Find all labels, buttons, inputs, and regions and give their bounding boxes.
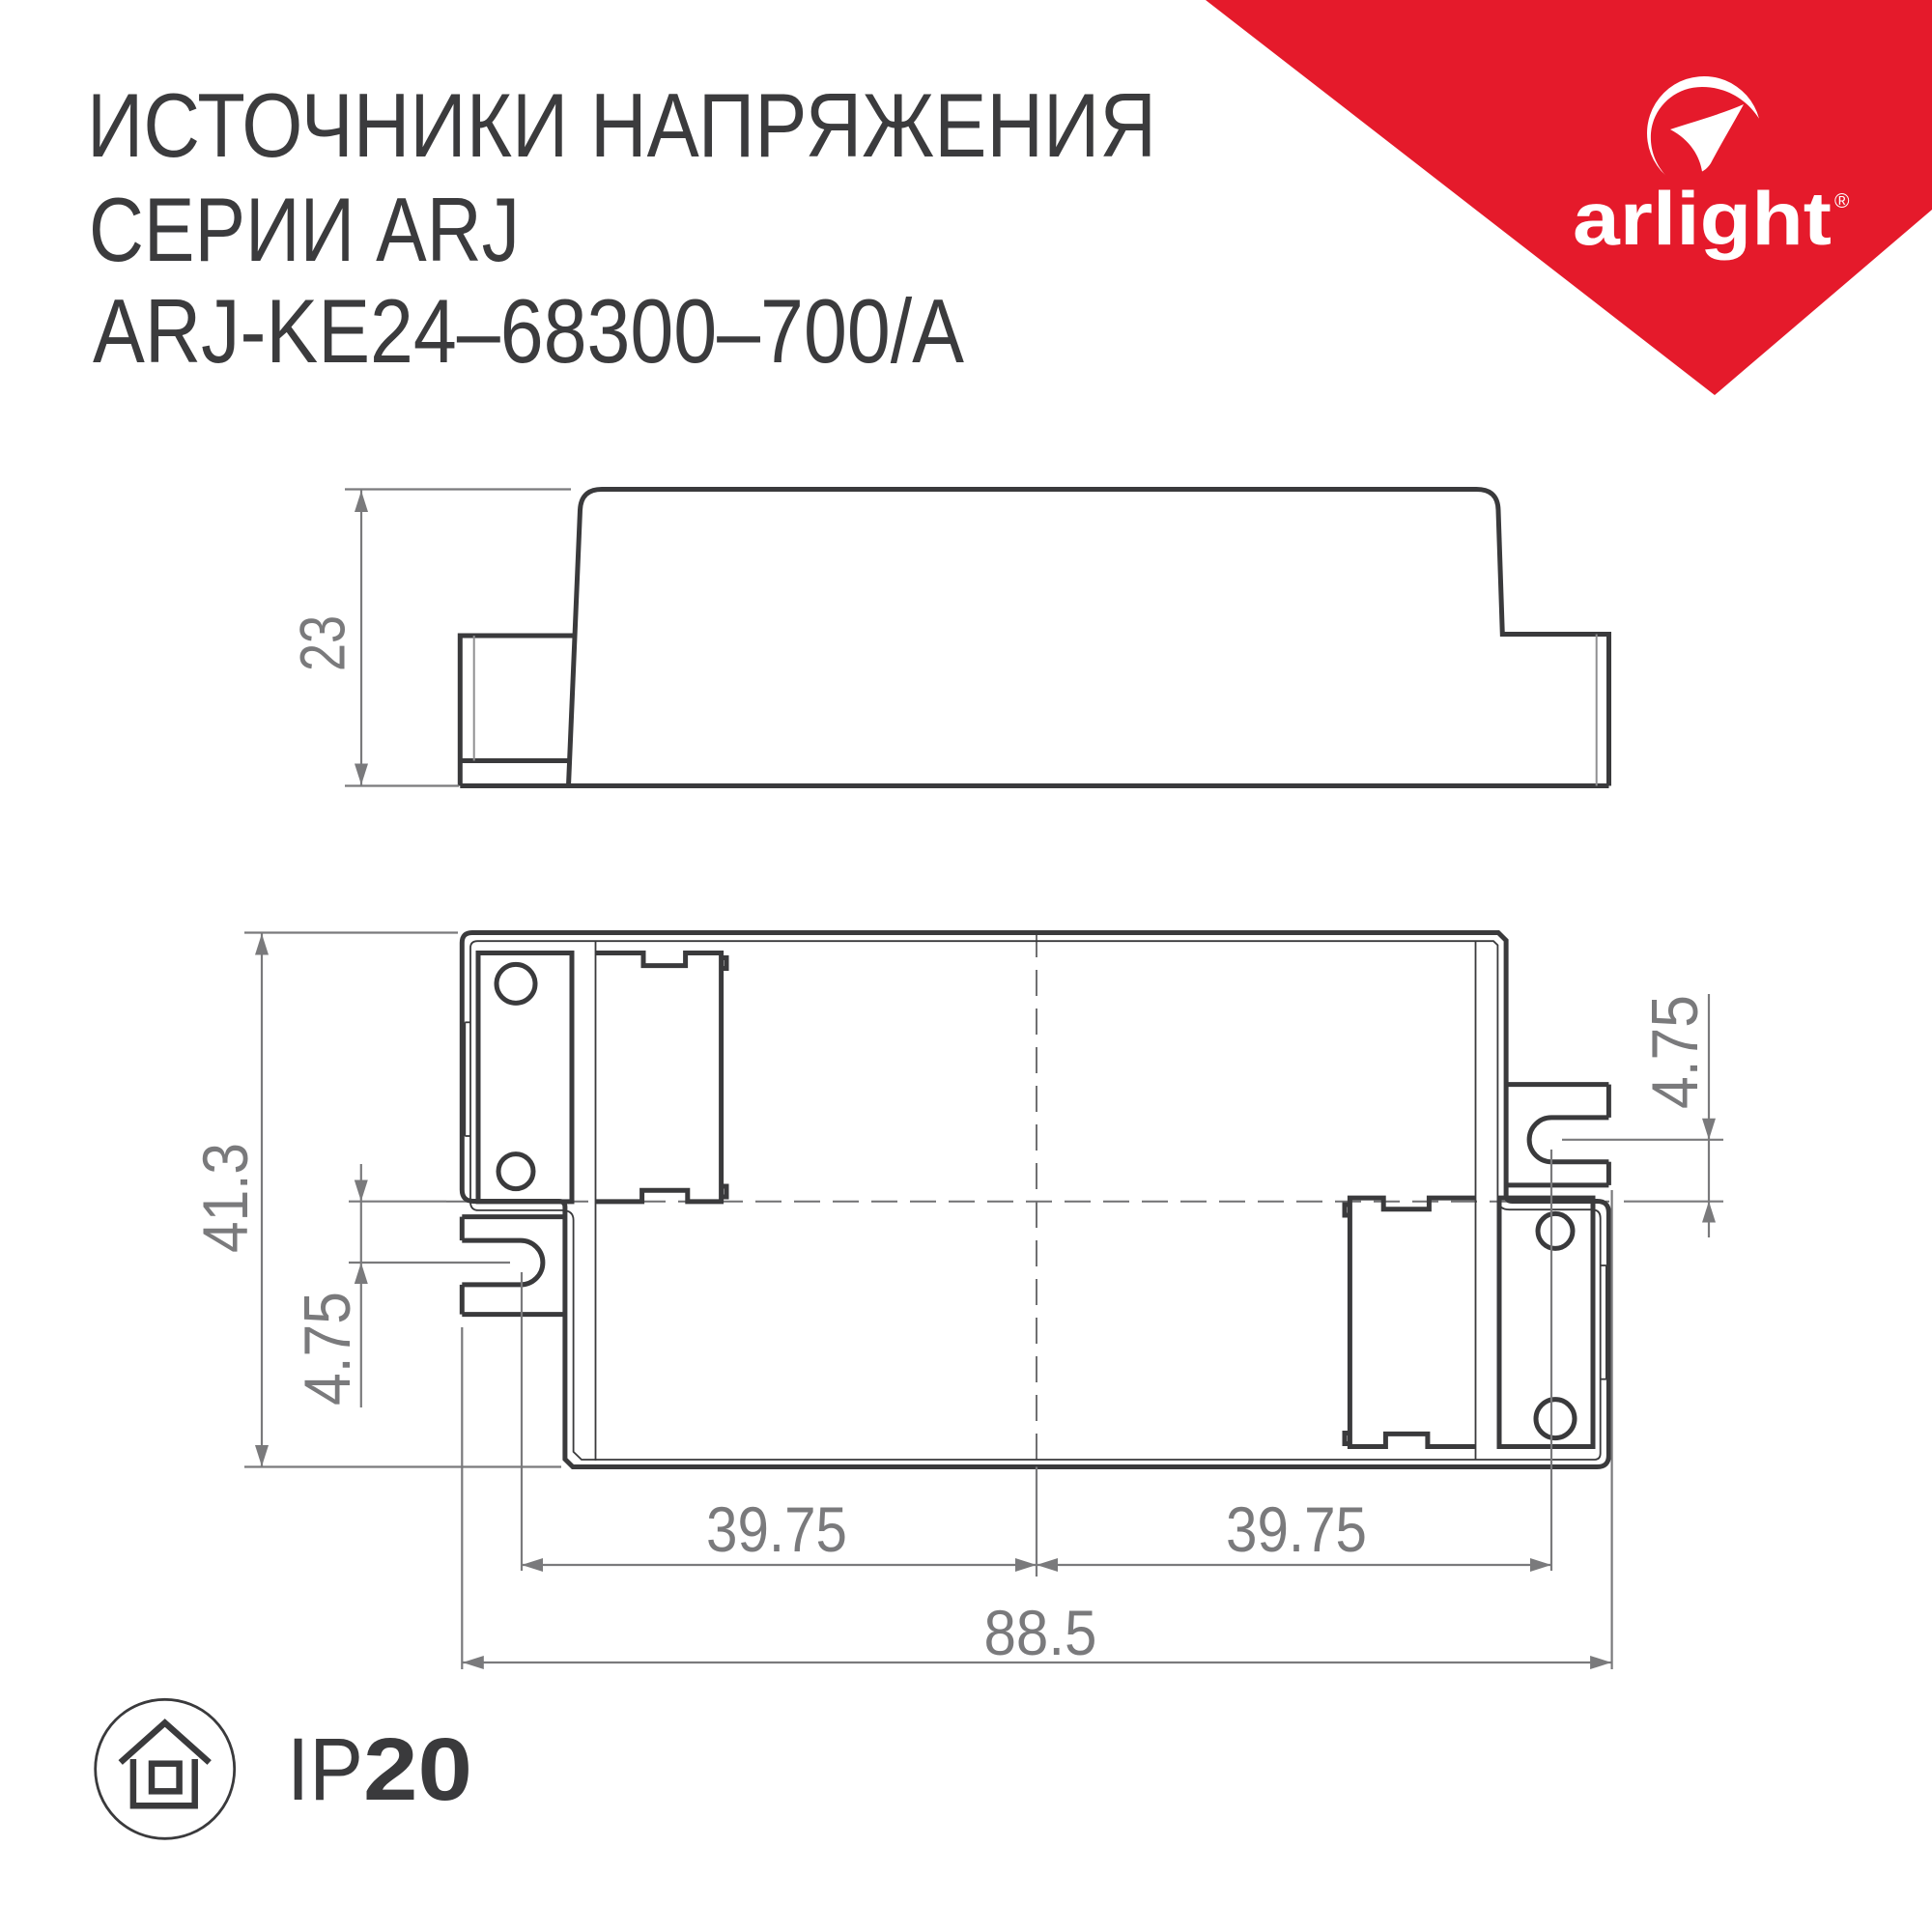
svg-text:41.3: 41.3 (189, 1143, 261, 1253)
svg-text:23: 23 (287, 615, 358, 671)
svg-text:4.75: 4.75 (291, 1292, 364, 1406)
svg-text:ИСТОЧНИКИ НАПРЯЖЕНИЯ: ИСТОЧНИКИ НАПРЯЖЕНИЯ (87, 74, 1156, 176)
svg-text:39.75: 39.75 (706, 1493, 847, 1565)
svg-text:®: ® (1834, 190, 1850, 213)
svg-text:arlight: arlight (1573, 176, 1832, 261)
svg-text:4.75: 4.75 (1638, 995, 1712, 1109)
svg-text:39.75: 39.75 (1226, 1493, 1367, 1565)
svg-text:СЕРИИ ARJ: СЕРИИ ARJ (89, 179, 520, 280)
svg-text:88.5: 88.5 (984, 1597, 1097, 1668)
svg-text:IP: IP (287, 1720, 363, 1819)
svg-text:ARJ-KE24–68300–700/A: ARJ-KE24–68300–700/A (93, 280, 964, 382)
svg-text:20: 20 (363, 1720, 472, 1819)
